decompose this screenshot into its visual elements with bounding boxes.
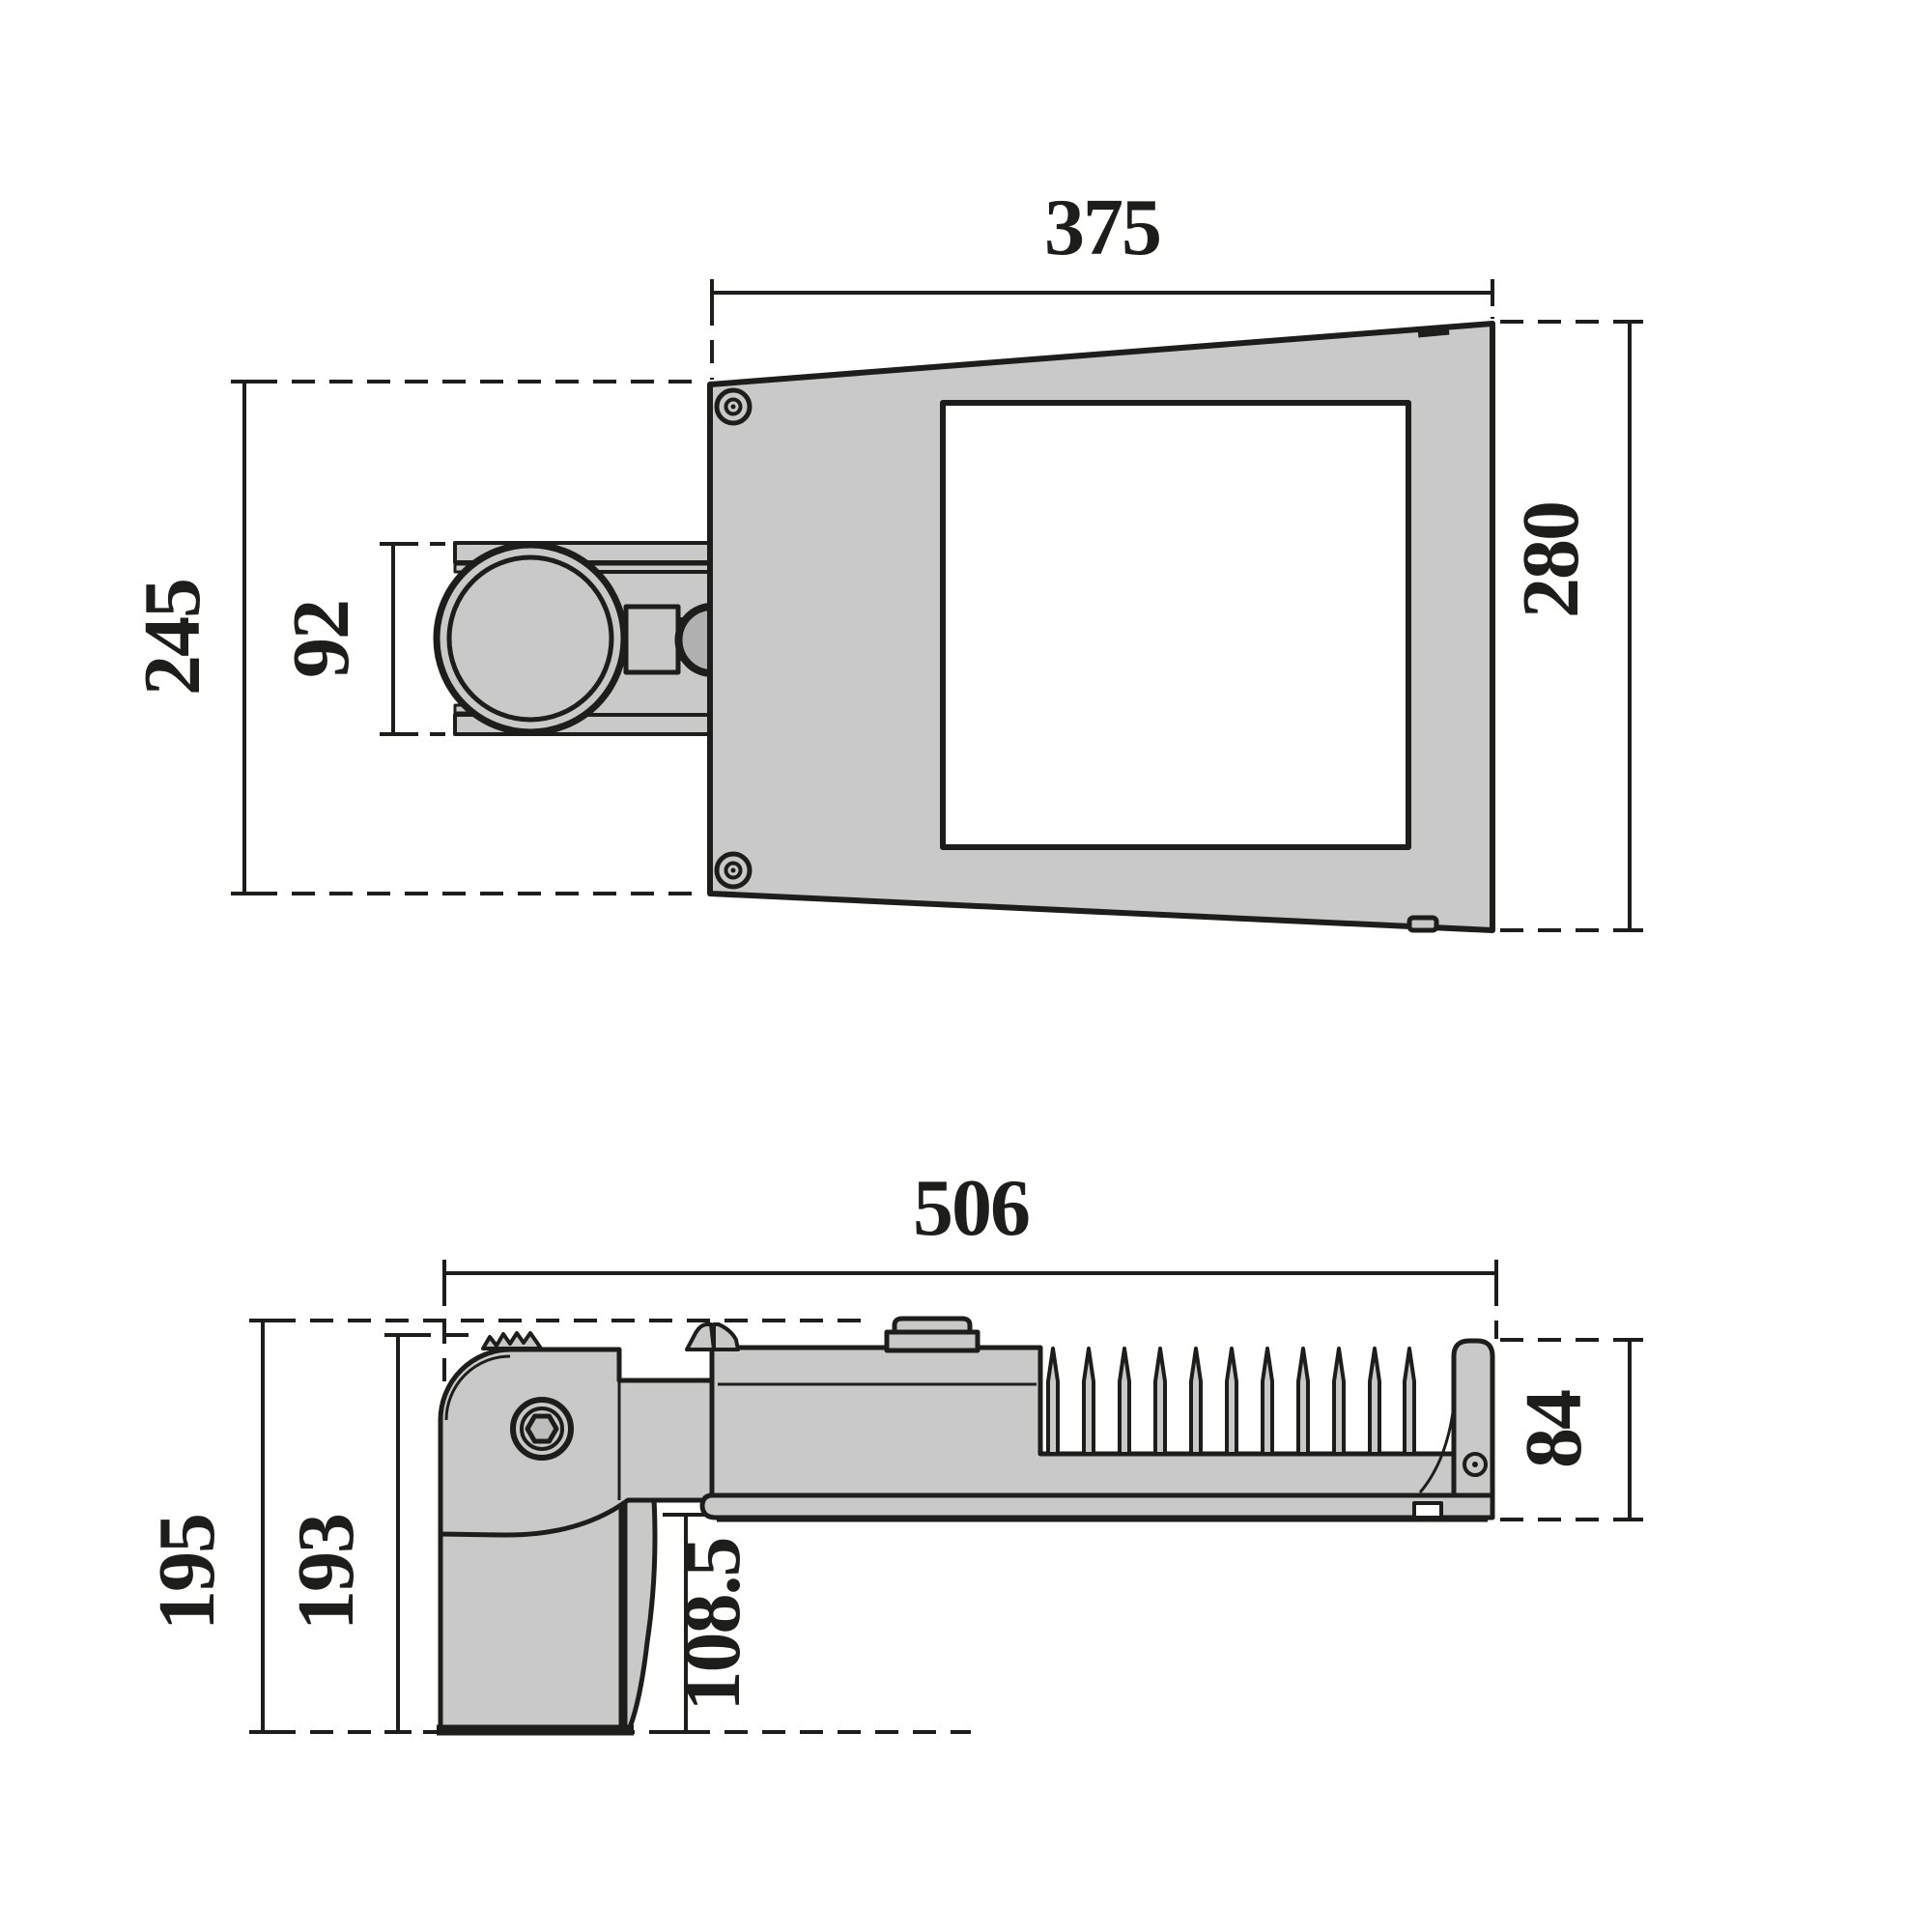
lens-door [702,1495,1492,1518]
top-view: 375 245 92 280 [128,183,1643,930]
pole-clamp-assembly [437,543,712,734]
side-view: 506 195 193 108.5 [142,1163,1643,1732]
heatsink-fins [1048,1349,1414,1454]
dim-label-92: 92 [276,601,366,678]
dim-label-84: 84 [1509,1390,1599,1468]
drawing-canvas: 375 245 92 280 [0,0,1932,1932]
hinge-serration [483,1333,541,1349]
clamp-notch [679,607,712,673]
dim-label-506: 506 [913,1163,1029,1253]
bracket-foot [625,1478,655,1727]
led-window [943,403,1408,847]
clamp-screw-block [626,607,678,672]
cable-gland [887,1319,978,1350]
dim-label-195: 195 [142,1515,232,1631]
lens-notch [1414,1503,1441,1518]
dim-label-245: 245 [128,580,217,696]
technical-drawing-page: 375 245 92 280 [0,0,1932,1932]
screw-bottom-left [717,854,750,887]
housing-bottom-tab [1409,918,1436,930]
dim-label-375: 375 [1044,183,1160,272]
latch-clip [687,1324,738,1350]
dim-label-193: 193 [281,1515,371,1631]
dim-280 [1500,322,1643,930]
housing-top-tab [1418,330,1449,333]
hex-socket [527,1416,556,1441]
hinge-head [440,1350,712,1535]
screw-top-left [717,390,750,423]
dim-label-280: 280 [1506,502,1596,618]
dim-label-108-5: 108.5 [668,1539,757,1712]
pole-circle-outer [437,545,624,732]
pivot-bolt [513,1400,571,1458]
